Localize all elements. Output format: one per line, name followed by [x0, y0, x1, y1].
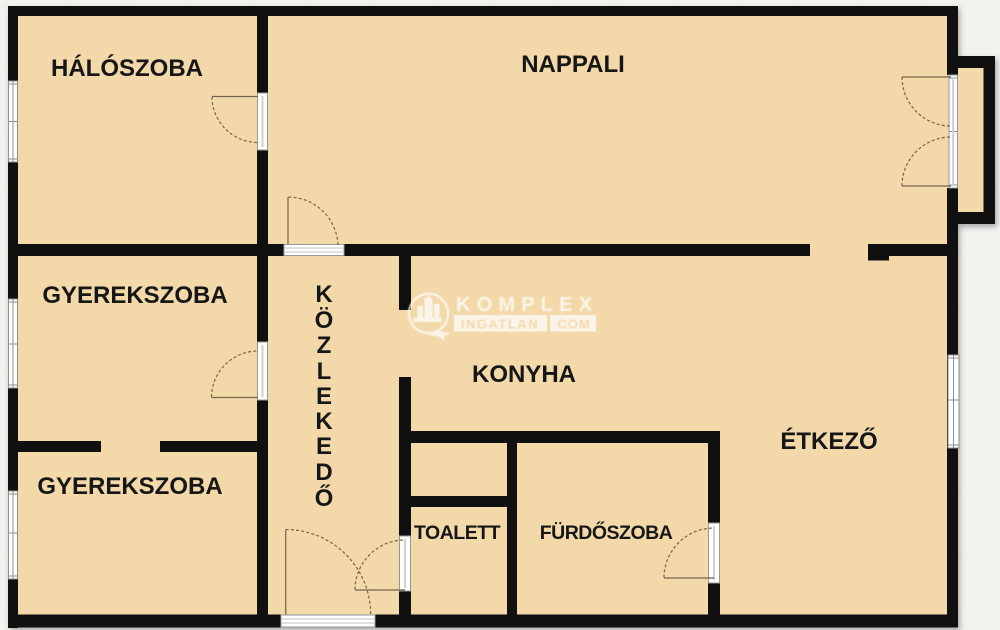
svg-text:NAPPALI: NAPPALI [521, 51, 625, 78]
svg-text:HÁLÓSZOBA: HÁLÓSZOBA [51, 54, 203, 82]
svg-text:GYEREKSZOBA: GYEREKSZOBA [42, 282, 227, 309]
svg-text:KONYHA: KONYHA [472, 361, 576, 388]
svg-text:D: D [315, 459, 332, 486]
svg-text:INGATLAN: INGATLAN [461, 317, 539, 332]
svg-text:L: L [317, 358, 332, 385]
svg-text:Z: Z [317, 332, 332, 359]
svg-text:FÜRDŐSZOBA: FÜRDŐSZOBA [540, 521, 673, 544]
svg-text:Ö: Ö [315, 307, 334, 334]
svg-text:E: E [316, 383, 332, 410]
svg-text:ÉTKEZŐ: ÉTKEZŐ [780, 427, 877, 455]
svg-text:COM: COM [557, 317, 590, 332]
svg-text:GYEREKSZOBA: GYEREKSZOBA [37, 473, 222, 500]
svg-text:KOMPLEX: KOMPLEX [456, 294, 598, 316]
svg-text:E: E [316, 433, 332, 460]
svg-text:TOALETT: TOALETT [414, 522, 501, 544]
svg-text:Ő: Ő [315, 484, 334, 512]
svg-text:K: K [315, 281, 333, 308]
svg-text:K: K [315, 408, 333, 435]
